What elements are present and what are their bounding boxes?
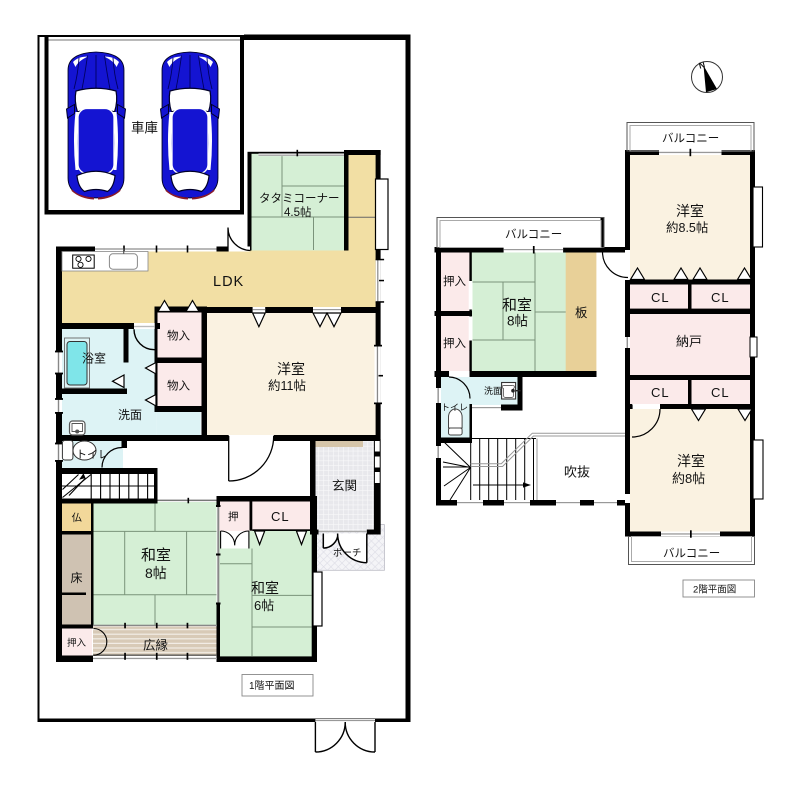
svg-text:8帖: 8帖 [145, 565, 167, 581]
svg-text:車庫: 車庫 [131, 121, 158, 136]
svg-text:トイレ: トイレ [441, 403, 468, 413]
svg-text:6帖: 6帖 [254, 598, 274, 613]
svg-text:CL: CL [651, 385, 670, 400]
svg-text:吹抜: 吹抜 [564, 465, 590, 480]
svg-text:床: 床 [71, 571, 83, 585]
svg-text:物入: 物入 [167, 329, 190, 343]
svg-text:和室: 和室 [251, 580, 279, 596]
svg-text:8帖: 8帖 [507, 314, 528, 329]
svg-text:タタミコーナー: タタミコーナー [259, 192, 340, 205]
svg-text:押入: 押入 [443, 336, 466, 350]
svg-text:ポーチ: ポーチ [333, 548, 362, 559]
svg-text:CL: CL [711, 290, 730, 305]
svg-text:LDK: LDK [213, 274, 244, 290]
svg-text:CL: CL [711, 385, 730, 400]
svg-text:和室: 和室 [141, 547, 171, 564]
svg-text:バルコニー: バルコニー [663, 547, 720, 560]
svg-text:洗面: 洗面 [484, 385, 502, 396]
svg-text:洗面: 洗面 [118, 408, 142, 422]
svg-text:約11帖: 約11帖 [268, 378, 306, 393]
svg-text:バルコニー: バルコニー [505, 228, 562, 241]
svg-text:2階平面図: 2階平面図 [693, 585, 736, 596]
svg-text:洋室: 洋室 [677, 453, 705, 469]
svg-text:板: 板 [575, 306, 588, 320]
svg-text:洋室: 洋室 [277, 361, 305, 377]
svg-text:広縁: 広縁 [143, 638, 168, 653]
svg-text:約8帖: 約8帖 [672, 471, 705, 486]
svg-text:仏: 仏 [72, 512, 83, 524]
svg-text:物入: 物入 [167, 379, 190, 393]
svg-text:CL: CL [651, 290, 670, 305]
svg-text:押: 押 [228, 510, 239, 523]
svg-text:洋室: 洋室 [676, 203, 704, 219]
svg-text:約8.5帖: 約8.5帖 [666, 220, 708, 235]
svg-text:玄関: 玄関 [332, 478, 357, 493]
svg-text:浴室: 浴室 [82, 351, 106, 366]
svg-text:押入: 押入 [443, 274, 466, 288]
svg-text:1階平面図: 1階平面図 [249, 680, 295, 692]
svg-text:4.5帖: 4.5帖 [284, 205, 312, 219]
svg-text:バルコニー: バルコニー [662, 132, 719, 145]
svg-text:トイレ: トイレ [76, 449, 109, 461]
svg-text:押入: 押入 [67, 637, 87, 649]
svg-text:納戸: 納戸 [676, 334, 702, 349]
svg-text:和室: 和室 [502, 297, 532, 314]
svg-text:CL: CL [271, 509, 290, 524]
